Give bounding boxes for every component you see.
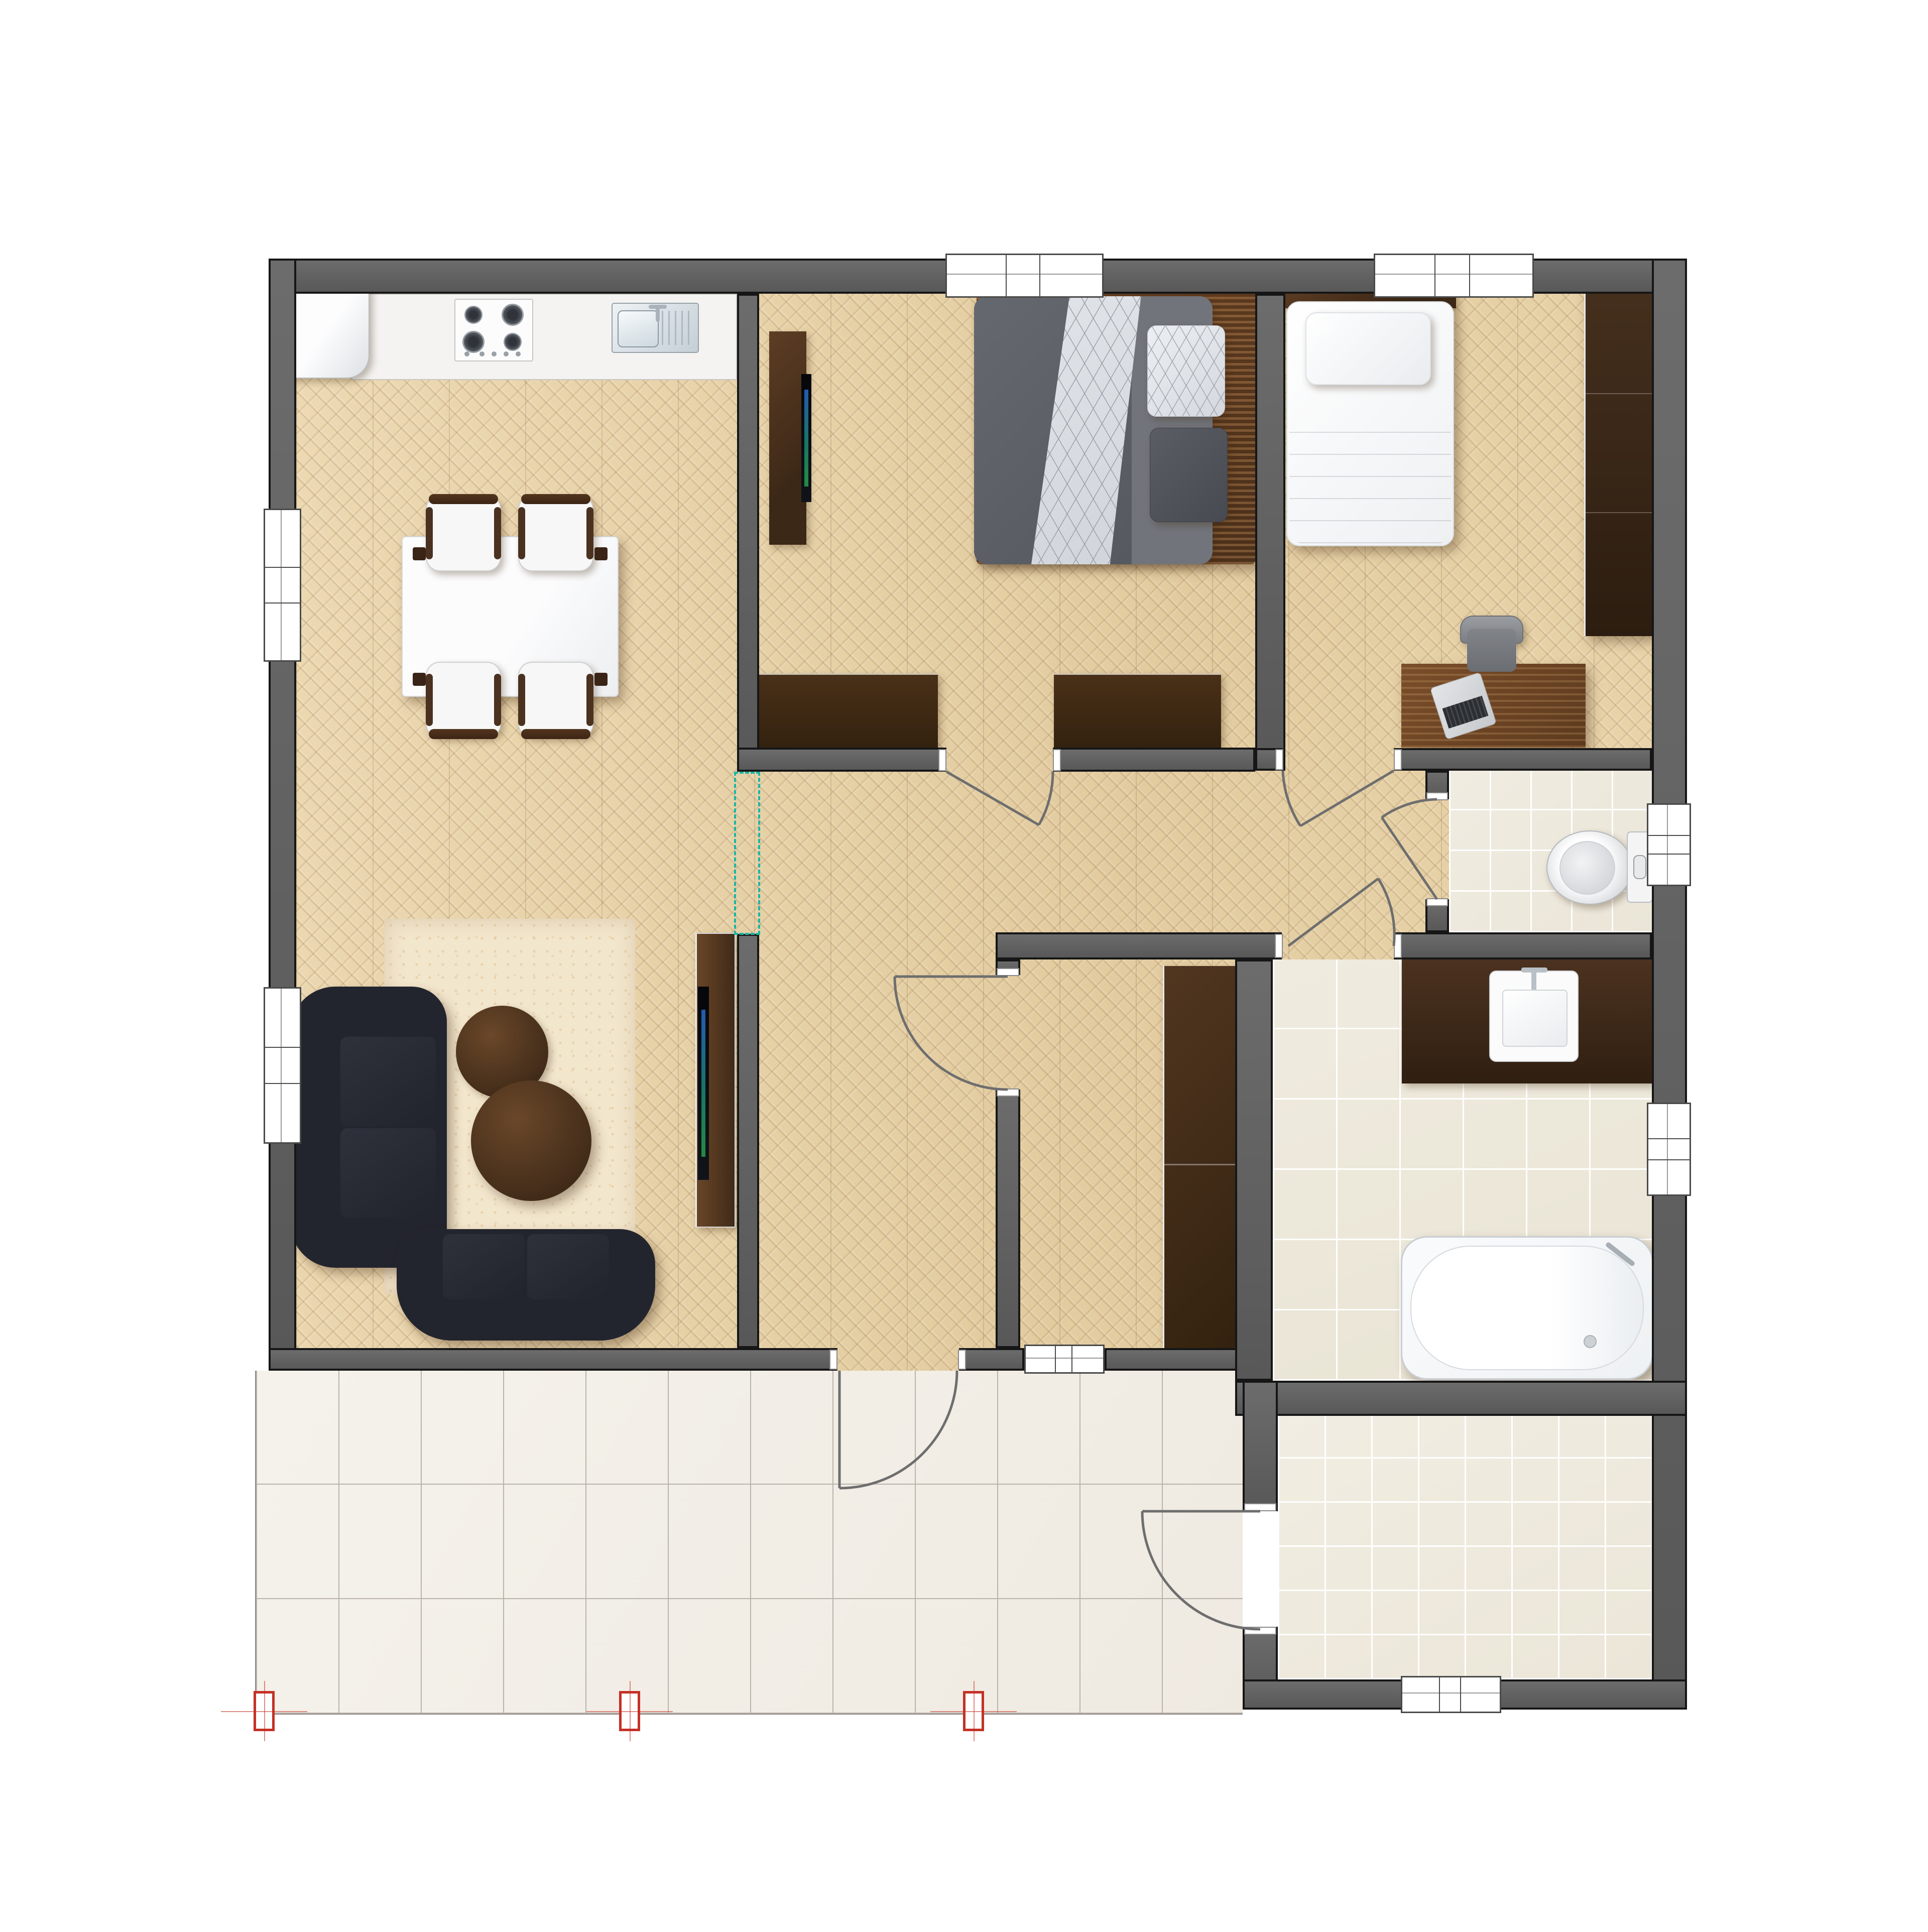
door-dressing — [895, 977, 1008, 1090]
door-bedroom-1 — [946, 772, 1053, 825]
door-entry-room — [1142, 1511, 1260, 1629]
column-marker — [963, 1691, 984, 1731]
column-marker — [619, 1691, 640, 1731]
door-swing-overlay — [0, 0, 1928, 1932]
door-toilet — [1382, 799, 1437, 899]
floor-plan — [0, 0, 1928, 1932]
door-patio — [839, 1371, 957, 1488]
door-bathroom — [1288, 879, 1394, 946]
door-bedroom-2 — [1283, 771, 1394, 826]
column-marker — [254, 1691, 275, 1731]
